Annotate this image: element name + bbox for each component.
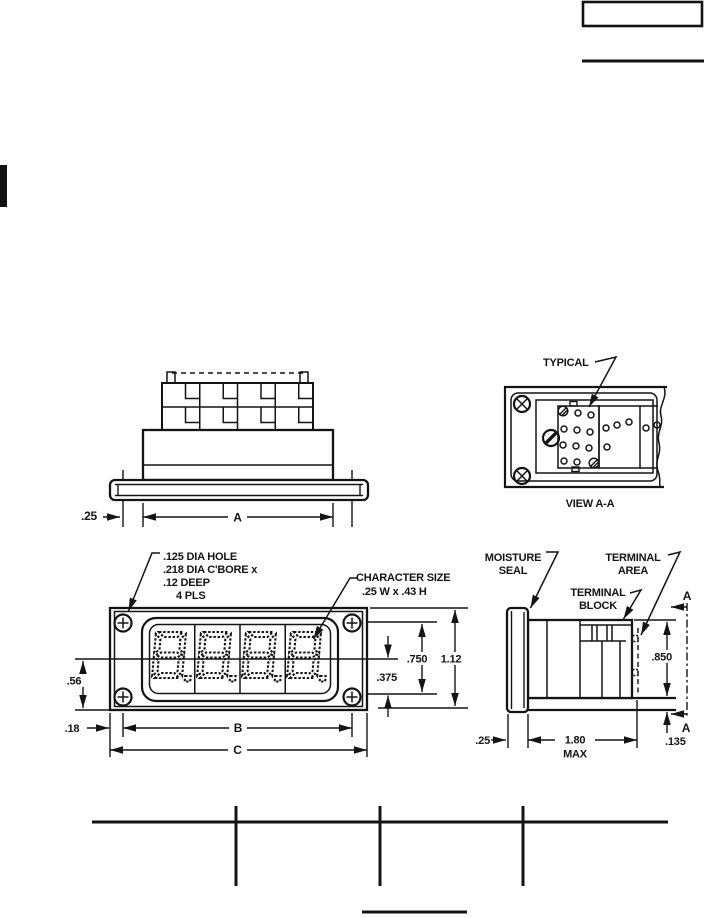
dim-label-180: 1.80 <box>565 735 586 747</box>
figure-number-box <box>583 2 702 26</box>
dim-label-112: 1.12 <box>441 654 462 666</box>
hole-callout-line2: .218 DIA C'BORE x <box>163 564 258 576</box>
moisture-seal-line1: MOISTURE <box>485 552 541 564</box>
moisture-seal-line2: SEAL <box>499 565 528 577</box>
parts-table-grid <box>92 806 668 886</box>
change-bar <box>0 165 7 207</box>
hole-callout-line1: .125 DIA HOLE <box>163 551 237 563</box>
dim-label-25-side: .25 <box>475 735 490 747</box>
terminal-holes <box>560 410 660 465</box>
engineering-drawing: A .25 <box>0 0 704 918</box>
housing-screw <box>514 396 530 484</box>
dim-label-flange-lip: .25 <box>81 509 98 523</box>
section-marker-top: A <box>683 589 692 603</box>
section-marker-bottom: A <box>682 721 691 735</box>
dim-label-135: .135 <box>665 736 686 748</box>
dim-label-c: C <box>233 743 242 757</box>
terminal-area-line2: AREA <box>618 565 649 577</box>
front-flange <box>110 480 368 500</box>
typical-label: TYPICAL <box>543 357 589 369</box>
character-size-line1: CHARACTER SIZE <box>356 572 450 584</box>
terminal-block-leader <box>624 590 642 619</box>
dim-label-375: .375 <box>376 672 397 684</box>
hole-callout-line4: 4 PLS <box>176 590 206 602</box>
meter-case <box>143 430 333 480</box>
terminal-screw-hidden <box>633 636 639 642</box>
view-aa-drawing: TYPICAL VIEW A-A <box>505 357 667 510</box>
terminal-screw-hidden <box>633 670 639 676</box>
bezel-side <box>507 608 528 712</box>
dim-label-a: A <box>233 511 242 525</box>
dim-label-56: .56 <box>67 676 82 688</box>
top-view-drawing: A .25 <box>81 372 368 527</box>
slotted-screw <box>543 430 559 446</box>
terminal-block-line1: TERMINAL <box>570 587 626 599</box>
dim-label-max: MAX <box>563 749 588 761</box>
character-size-line2: .25 W x .43 H <box>362 586 427 598</box>
front-view-drawing: .56 .18 B C .750 1.12 .375 .125 DIA HOLE… <box>59 551 468 757</box>
dim-label-18: .18 <box>65 723 80 735</box>
dim-label-b: B <box>234 721 243 735</box>
dim-label-750: .750 <box>407 654 428 666</box>
dim-label-850: .850 <box>651 652 672 664</box>
break-line <box>657 387 665 487</box>
manual-page: A .25 <box>0 0 704 918</box>
hole-callout-leader <box>129 553 161 611</box>
terminal-block-3 <box>640 406 658 468</box>
terminal-block-2 <box>599 406 640 468</box>
terminal-block-line2: BLOCK <box>579 600 617 612</box>
view-aa-title: VIEW A-A <box>566 498 615 510</box>
side-view-drawing: MOISTURE SEAL TERMINAL AREA TERMINAL BLO… <box>475 552 691 761</box>
hole-callout-line3: .12 DEEP <box>163 577 210 589</box>
terminal-area-line1: TERMINAL <box>605 552 661 564</box>
